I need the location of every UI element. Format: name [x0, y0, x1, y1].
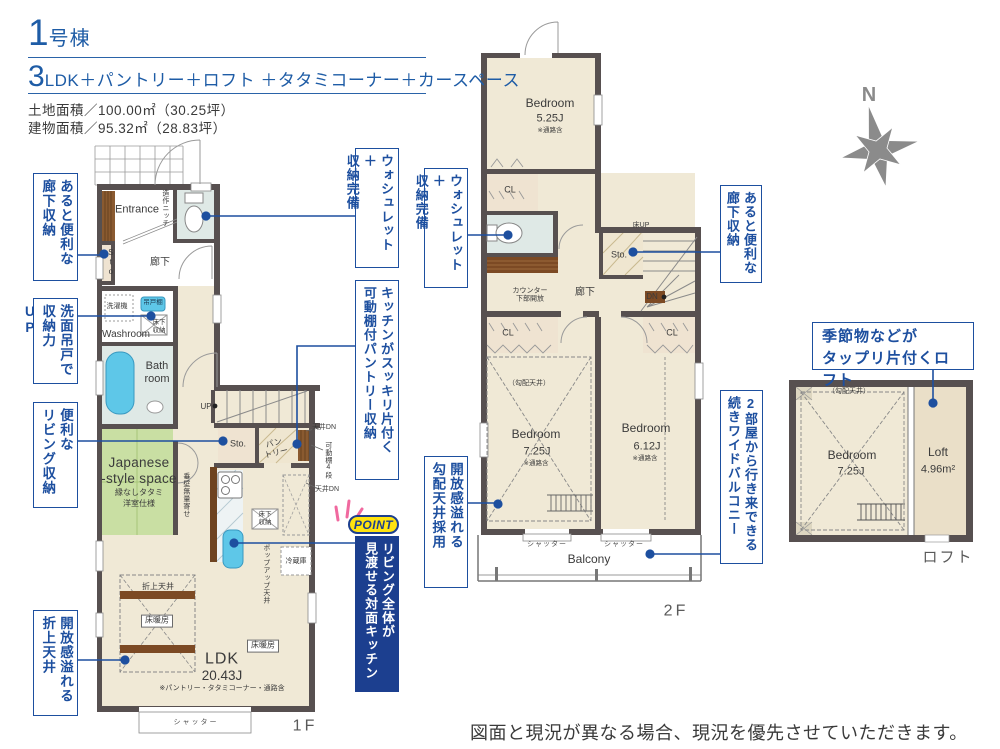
note-ceiling-dn-bottom: 天井DN — [315, 486, 339, 494]
fixture-fridge: 冷蔵庫 — [286, 558, 307, 566]
room-bedroom2: Bedroom — [512, 427, 561, 441]
callout-living-storage: 便利な リビング収納 — [33, 402, 78, 508]
room-loft-bedroom: Bedroom — [828, 448, 877, 462]
room-bedroom2-size: 7.25J — [524, 445, 551, 458]
compass-icon — [828, 100, 928, 200]
header-divider-2 — [28, 93, 426, 94]
room-japanese-space: Japanese -style space — [101, 455, 177, 487]
callout-text: キッチンがスッキリ片付く — [378, 286, 395, 474]
page-title: 1号棟 — [28, 14, 91, 51]
room-loft-bedroom-size: 7.25J — [838, 465, 865, 478]
callout-text: ウォシュレット＋ — [361, 154, 395, 262]
land-area: 土地面積／100.00㎡（30.25坪） — [28, 99, 235, 119]
room-balcony: Balcony — [568, 552, 611, 566]
point-badge: POINT — [348, 515, 399, 534]
note-sloped-2f: （勾配天井） — [508, 380, 550, 388]
callout-text: 季節物などが — [822, 326, 964, 348]
floor-2f-plan — [475, 45, 707, 605]
note-counter: カウンター 下部開放 — [513, 288, 548, 305]
room-ldk-note: ※パントリー・タタミコーナー・通路含 — [159, 685, 284, 693]
f2-toilet — [487, 223, 522, 243]
callout-loft: 季節物などが タップリ片付くロフト — [812, 322, 974, 370]
callout-text: 収納完備 — [413, 174, 430, 282]
room-washroom: Washroom — [102, 329, 150, 341]
callout-sloped: 開放感溢れる 勾配天井採用 — [424, 456, 468, 588]
callout-hall-storage-1f: あると便利な 廊下収納 — [33, 173, 78, 281]
floor-label-2f: 2F — [664, 601, 689, 620]
fixture-hanging-cabinet: 吊戸棚 — [143, 299, 163, 307]
callout-text: 開放感溢れる — [56, 616, 74, 710]
room-entrance: Entrance — [115, 203, 159, 216]
room-cl1: CL — [504, 185, 516, 196]
room-bathroom: Bath room — [144, 360, 169, 386]
callout-text: 洗面吊戸で — [56, 304, 74, 378]
callout-text: 可動棚付パントリー収納 — [361, 286, 378, 474]
note-ceiling-dn-top: 天井DN — [312, 424, 336, 432]
disclaimer-text: 図面と現況が異なる場合、現況を優先させていただきます。 — [470, 719, 968, 745]
callout-text: 折上天井 — [38, 616, 56, 710]
room-cl3: CL — [666, 328, 678, 339]
note-shutter-2f-2: シャッター — [604, 541, 644, 549]
note-coffered: 折上天井 — [142, 582, 174, 592]
room-ldk-size: 20.43J — [202, 668, 243, 684]
room-loft: Loft — [928, 445, 948, 459]
building-area: 建物面積／95.32㎡（28.83坪） — [28, 117, 227, 137]
note-floor-heating-2: 床暖房 — [247, 640, 279, 653]
callout-text: 収納力UP — [21, 304, 57, 378]
callout-text: 開放感溢れる — [446, 462, 464, 582]
note-floor-up: 床UP — [633, 222, 650, 230]
callout-text: 収納完備 — [344, 154, 361, 262]
note-stairs-up: UP — [200, 402, 211, 412]
callout-text: あると便利な — [741, 191, 758, 277]
callout-point-kitchen: リビング全体が 見渡せる対面キッチン — [355, 536, 399, 692]
callout-hall-storage-2f: あると便利な 廊下収納 — [720, 185, 762, 283]
note-stairs-dn: DN — [646, 292, 658, 302]
note-shutter-1f: シャッター — [174, 719, 219, 727]
callout-washlet-1f: ウォシュレット＋ 収納完備 — [355, 148, 399, 268]
room-bedroom1: Bedroom — [526, 96, 575, 110]
room-bedroom1-size: 5.25J — [537, 112, 564, 125]
header-divider-1 — [28, 57, 426, 58]
room-sto-hall-1f: Sto. — [106, 248, 115, 286]
plan-summary: 3LDK＋パントリー＋ロフト ＋タタミコーナー＋カースペース — [28, 62, 520, 92]
building-suffix: 号棟 — [49, 28, 91, 50]
room-sto-2f: Sto. — [611, 250, 627, 261]
callout-vanity: 洗面吊戸で 収納力UP — [33, 298, 78, 384]
callout-text: 廊下収納 — [724, 191, 741, 277]
callout-text: タップリ片付くロフト — [822, 348, 964, 392]
room-hallway-1f: 廊下 — [150, 257, 170, 269]
note-wall: 垂壁無量寄せ — [182, 473, 190, 518]
note-underfloor-wash: 床下 収納 — [153, 319, 166, 335]
callout-text: 便利な — [56, 408, 74, 502]
fixture-washer: 洗濯機 — [107, 303, 128, 311]
note-tatami-2: 洋室仕様 — [123, 499, 155, 509]
callout-text: 2部屋から行き来できる — [742, 396, 759, 558]
note-shutter-2f-1: シャッター — [527, 541, 567, 549]
callout-washlet-2f: ウォシュレット＋ 収納完備 — [424, 168, 468, 288]
plan-ldk-suffix: LDK＋パントリー＋ロフト ＋タタミコーナー＋カースペース — [45, 71, 520, 90]
floor-label-1f: 1F — [293, 716, 318, 735]
plan-ldk-number: 3 — [28, 60, 45, 93]
callout-balcony: 2部屋から行き来できる 続きワイドバルコニー — [720, 390, 763, 564]
loft-divider — [908, 387, 914, 535]
callout-text: リビング全体が — [378, 542, 395, 686]
room-ldk: LDK — [205, 649, 239, 668]
callout-text: 見渡せる対面キッチン — [361, 542, 378, 686]
note-popup-ceiling: ポップアップ天井 — [262, 544, 270, 604]
room-bedroom3: Bedroom — [622, 421, 671, 435]
note-tatami: 縁なしタタミ — [115, 488, 163, 498]
note-floor-heating-1: 床暖房 — [141, 615, 173, 628]
callout-text: リビング収納 — [38, 408, 56, 502]
callout-text: あると便利な — [56, 179, 74, 275]
callout-text: 廊下収納 — [38, 179, 56, 275]
room-cl2: CL — [502, 328, 514, 339]
floor-label-loft: ロフト — [922, 549, 973, 567]
callout-pantry: キッチンがスッキリ片付く 可動棚付パントリー収納 — [355, 280, 399, 480]
callout-text: ウォシュレット＋ — [430, 174, 464, 282]
room-bedroom1-note: ※通路含 — [538, 127, 563, 135]
note-underfloor-kitchen: 床下 収納 — [259, 511, 272, 527]
floor-plan-page: 1号棟 3LDK＋パントリー＋ロフト ＋タタミコーナー＋カースペース 土地面積／… — [0, 0, 1000, 749]
room-bedroom3-size: 6.12J — [634, 440, 661, 453]
compass-north-label: N — [862, 83, 876, 107]
room-bedroom3-note: ※通路含 — [633, 455, 658, 463]
room-sto-mid-1f: Sto. — [230, 439, 246, 450]
building-number: 1 — [28, 12, 49, 53]
callout-text: 勾配天井採用 — [428, 462, 446, 582]
note-movable-shelf: 可動棚4段 — [324, 441, 332, 479]
room-bedroom2-note: ※通路含 — [524, 460, 549, 468]
callout-coffered: 開放感溢れる 折上天井 — [33, 610, 78, 716]
room-hallway-2f: 廊下 — [575, 287, 595, 299]
note-niche: 造作ニッチ — [161, 189, 169, 227]
room-loft-size: 4.96m² — [921, 463, 955, 476]
callout-text: 続きワイドバルコニー — [725, 396, 742, 558]
